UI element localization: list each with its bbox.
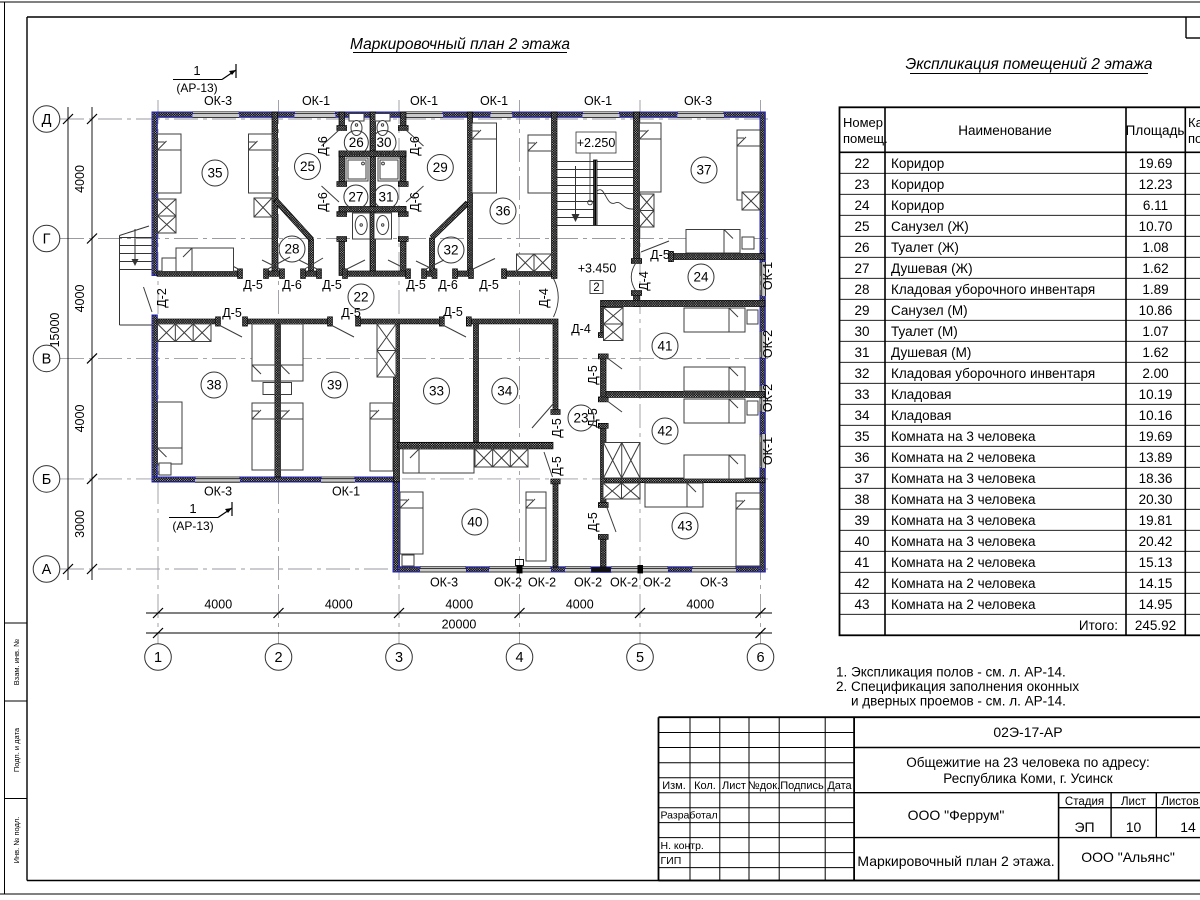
svg-text:4000: 4000: [325, 598, 353, 612]
svg-text:1: 1: [154, 650, 162, 666]
svg-text:Д-6: Д-6: [408, 192, 422, 212]
svg-text:Коридор: Коридор: [891, 177, 944, 192]
svg-text:10.19: 10.19: [1139, 387, 1173, 402]
svg-text:Д-6: Д-6: [282, 278, 302, 292]
svg-text:31: 31: [854, 345, 869, 360]
svg-text:ОК-1: ОК-1: [332, 485, 360, 499]
svg-text:20.42: 20.42: [1139, 534, 1173, 549]
svg-text:4000: 4000: [445, 598, 473, 612]
svg-text:1: 1: [189, 501, 196, 516]
svg-text:1.62: 1.62: [1142, 345, 1168, 360]
svg-text:22: 22: [353, 290, 368, 305]
svg-text:ОК-1: ОК-1: [302, 94, 330, 108]
svg-text:Д-4: Д-4: [537, 288, 551, 308]
svg-text:33: 33: [429, 384, 444, 399]
svg-text:41: 41: [657, 339, 672, 354]
svg-text:Номер: Номер: [843, 115, 883, 130]
svg-text:Комната на 3 человека: Комната на 3 человека: [891, 534, 1036, 549]
svg-text:39: 39: [327, 378, 342, 393]
svg-text:23: 23: [573, 411, 588, 426]
svg-text:6.11: 6.11: [1143, 198, 1168, 213]
svg-text:2. Спецификация заполнения око: 2. Спецификация заполнения оконных: [836, 679, 1079, 694]
svg-text:+2.250: +2.250: [577, 136, 616, 150]
svg-text:1.62: 1.62: [1142, 261, 1168, 276]
svg-text:20.30: 20.30: [1139, 492, 1173, 507]
svg-text:10.16: 10.16: [1139, 408, 1173, 423]
svg-text:В: В: [42, 351, 52, 367]
svg-text:по: по: [1188, 131, 1200, 146]
svg-text:2: 2: [593, 282, 599, 294]
svg-text:Комната на 2 человека: Комната на 2 человека: [891, 450, 1036, 465]
svg-text:4000: 4000: [73, 405, 87, 433]
svg-text:34: 34: [854, 408, 870, 423]
svg-text:Д-6: Д-6: [408, 136, 422, 156]
svg-text:38: 38: [206, 378, 221, 393]
svg-text:19.81: 19.81: [1139, 513, 1173, 528]
svg-text:ОК-2: ОК-2: [610, 576, 638, 590]
svg-text:Санузел (М): Санузел (М): [891, 303, 968, 318]
svg-text:Ка: Ка: [1188, 115, 1200, 130]
svg-text:Д-6: Д-6: [316, 192, 330, 212]
svg-text:Д-5: Д-5: [341, 306, 361, 320]
svg-text:Маркировочный план 2 этажа: Маркировочный план 2 этажа: [350, 36, 570, 53]
svg-text:2.00: 2.00: [1142, 366, 1168, 381]
svg-text:Д-4: Д-4: [637, 271, 651, 291]
svg-text:ОК-3: ОК-3: [684, 94, 712, 108]
svg-text:№док.: №док.: [748, 780, 780, 792]
svg-text:Б: Б: [42, 472, 52, 488]
svg-text:Комната на 2 человека: Комната на 2 человека: [891, 576, 1036, 591]
svg-text:Площадь: Площадь: [1126, 123, 1185, 138]
svg-text:ГИП: ГИП: [661, 855, 682, 867]
svg-text:28: 28: [284, 242, 299, 257]
svg-text:Комната на 3 человека: Комната на 3 человека: [891, 471, 1036, 486]
svg-text:ОК-3: ОК-3: [700, 576, 728, 590]
svg-text:24: 24: [854, 198, 870, 213]
svg-text:Изм.: Изм.: [662, 780, 686, 792]
svg-text:4000: 4000: [686, 598, 714, 612]
svg-text:6: 6: [756, 650, 764, 666]
svg-text:ООО "Альянс": ООО "Альянс": [1081, 849, 1175, 865]
svg-text:23: 23: [854, 177, 869, 192]
svg-text:Санузел (Ж): Санузел (Ж): [891, 219, 969, 234]
svg-text:30: 30: [854, 324, 869, 339]
svg-text:1.89: 1.89: [1142, 282, 1168, 297]
svg-text:5: 5: [636, 650, 644, 666]
svg-text:43: 43: [677, 519, 692, 534]
svg-text:22: 22: [854, 156, 869, 171]
svg-text:39: 39: [854, 513, 869, 528]
svg-text:ОК-1: ОК-1: [584, 94, 612, 108]
svg-text:ОК-2: ОК-2: [761, 330, 775, 358]
svg-text:15000: 15000: [48, 313, 62, 348]
svg-text:ОК-3: ОК-3: [204, 485, 232, 499]
svg-text:(АР-13): (АР-13): [172, 519, 213, 533]
svg-text:Д-5: Д-5: [550, 418, 564, 438]
svg-text:32: 32: [443, 243, 458, 258]
svg-text:Комната на 3 человека: Комната на 3 человека: [891, 492, 1036, 507]
svg-text:19.69: 19.69: [1139, 429, 1173, 444]
svg-text:и дверных проемов - см. л. АР-: и дверных проемов - см. л. АР-14.: [851, 694, 1066, 709]
svg-text:Лист: Лист: [722, 780, 746, 792]
svg-text:Д: Д: [42, 112, 52, 128]
svg-text:Разработал: Разработал: [661, 810, 718, 822]
svg-text:Коридор: Коридор: [891, 198, 944, 213]
svg-text:Общежитие на 23 человека по ад: Общежитие на 23 человека по адресу:: [906, 755, 1149, 770]
svg-text:10: 10: [1126, 819, 1142, 835]
svg-text:1: 1: [193, 63, 200, 78]
svg-text:Республика Коми, г. Усинск: Республика Коми, г. Усинск: [943, 771, 1113, 786]
svg-text:2: 2: [274, 650, 282, 666]
svg-text:Д-5: Д-5: [586, 365, 600, 385]
svg-text:35: 35: [207, 166, 222, 181]
svg-text:Подпись: Подпись: [780, 780, 824, 792]
svg-text:Наименование: Наименование: [958, 123, 1052, 138]
svg-text:Туалет (Ж): Туалет (Ж): [891, 240, 959, 255]
svg-text:29: 29: [854, 303, 869, 318]
svg-text:27: 27: [348, 190, 363, 205]
svg-text:Д-5: Д-5: [479, 278, 499, 292]
svg-text:Взам. инв. №: Взам. инв. №: [12, 639, 21, 685]
svg-text:35: 35: [854, 429, 869, 444]
svg-text:Д-5: Д-5: [243, 278, 263, 292]
svg-text:ОК-1: ОК-1: [761, 262, 775, 290]
svg-text:Комната на 2 человека: Комната на 2 человека: [891, 597, 1036, 612]
svg-text:Кладовая уборочного инвентаря: Кладовая уборочного инвентаря: [891, 282, 1095, 297]
svg-text:ОК-1: ОК-1: [761, 437, 775, 465]
svg-text:02Э-17-АР: 02Э-17-АР: [993, 724, 1062, 740]
svg-text:32: 32: [854, 366, 869, 381]
svg-text:Д-6: Д-6: [316, 136, 330, 156]
svg-text:ОК-1: ОК-1: [410, 94, 438, 108]
svg-text:14.95: 14.95: [1139, 597, 1173, 612]
svg-text:31: 31: [378, 190, 393, 205]
svg-text:14.15: 14.15: [1139, 576, 1173, 591]
svg-text:3: 3: [395, 650, 403, 666]
svg-text:37: 37: [854, 471, 869, 486]
svg-text:Кол.: Кол.: [694, 780, 716, 792]
svg-text:19.69: 19.69: [1139, 156, 1173, 171]
svg-text:ОК-1: ОК-1: [480, 94, 508, 108]
svg-text:+3.450: +3.450: [578, 262, 617, 276]
svg-text:Д-5: Д-5: [650, 248, 670, 262]
svg-text:29: 29: [433, 160, 448, 175]
svg-text:Д-5: Д-5: [406, 278, 426, 292]
svg-text:41: 41: [854, 555, 869, 570]
svg-text:Комната на 3 человека: Комната на 3 человека: [891, 513, 1036, 528]
svg-text:Листов: Листов: [1161, 796, 1198, 808]
svg-text:Кладовая уборочного инвентаря: Кладовая уборочного инвентаря: [891, 366, 1095, 381]
svg-text:18.36: 18.36: [1139, 471, 1173, 486]
svg-text:Д-5: Д-5: [550, 456, 564, 476]
svg-text:40: 40: [854, 534, 869, 549]
svg-text:26: 26: [854, 240, 869, 255]
svg-text:20000: 20000: [442, 618, 477, 632]
svg-text:Туалет (М): Туалет (М): [891, 324, 958, 339]
svg-text:43: 43: [854, 597, 869, 612]
svg-text:ОК-2: ОК-2: [643, 576, 671, 590]
svg-text:30: 30: [376, 135, 391, 150]
svg-text:38: 38: [854, 492, 869, 507]
svg-text:Дата: Дата: [827, 780, 852, 792]
svg-text:26: 26: [349, 135, 364, 150]
svg-text:помещ.: помещ.: [843, 131, 888, 146]
svg-text:Подп. и дата: Подп. и дата: [12, 727, 21, 772]
svg-text:1.07: 1.07: [1142, 324, 1168, 339]
svg-text:36: 36: [495, 204, 510, 219]
svg-text:Д-2: Д-2: [155, 288, 169, 308]
svg-text:Экспликация помещений 2 этажа: Экспликация помещений 2 этажа: [905, 56, 1152, 73]
svg-text:4: 4: [515, 650, 523, 666]
svg-text:33: 33: [854, 387, 869, 402]
svg-text:25: 25: [854, 219, 869, 234]
svg-text:24: 24: [693, 270, 709, 285]
svg-text:ОК-3: ОК-3: [204, 94, 232, 108]
svg-text:36: 36: [854, 450, 869, 465]
svg-text:Д-6: Д-6: [438, 278, 458, 292]
svg-text:Инв. № подл.: Инв. № подл.: [12, 817, 21, 864]
svg-text:27: 27: [854, 261, 869, 276]
svg-text:Д-5: Д-5: [222, 306, 242, 320]
svg-text:28: 28: [854, 282, 869, 297]
svg-text:4000: 4000: [566, 598, 594, 612]
svg-text:37: 37: [696, 163, 711, 178]
svg-text:Комната на 3 человека: Комната на 3 человека: [891, 429, 1036, 444]
svg-text:Маркировочный план 2 этажа.: Маркировочный план 2 этажа.: [857, 853, 1054, 869]
svg-text:Г: Г: [43, 232, 51, 248]
svg-text:Д-5: Д-5: [586, 512, 600, 532]
svg-text:Душевая (Ж): Душевая (Ж): [891, 261, 973, 276]
svg-text:25: 25: [300, 159, 315, 174]
svg-text:12.23: 12.23: [1139, 177, 1173, 192]
svg-text:Итого:: Итого:: [1079, 618, 1118, 633]
svg-text:1. Экспликация полов - см. л.: 1. Экспликация полов - см. л. АР-14.: [836, 665, 1066, 680]
svg-text:ОК-3: ОК-3: [430, 576, 458, 590]
svg-text:42: 42: [657, 424, 672, 439]
svg-text:10.86: 10.86: [1139, 303, 1173, 318]
svg-text:245.92: 245.92: [1135, 618, 1176, 633]
svg-text:Д-5: Д-5: [322, 278, 342, 292]
svg-text:3000: 3000: [73, 510, 87, 538]
svg-text:Комната на 2 человека: Комната на 2 человека: [891, 555, 1036, 570]
svg-text:Д-5: Д-5: [443, 305, 463, 319]
svg-text:Коридор: Коридор: [891, 156, 944, 171]
svg-text:ОК-2: ОК-2: [494, 576, 522, 590]
svg-text:40: 40: [467, 515, 482, 530]
svg-text:ОК-2: ОК-2: [761, 384, 775, 412]
svg-text:(АР-13): (АР-13): [176, 81, 217, 95]
svg-text:13.89: 13.89: [1139, 450, 1173, 465]
svg-text:Душевая (М): Душевая (М): [891, 345, 971, 360]
svg-text:4000: 4000: [73, 165, 87, 193]
svg-text:10.70: 10.70: [1139, 219, 1173, 234]
svg-text:14: 14: [1180, 819, 1196, 835]
svg-text:ОК-2: ОК-2: [528, 576, 556, 590]
svg-text:Кладовая: Кладовая: [891, 408, 951, 423]
svg-text:ОК-2: ОК-2: [574, 576, 602, 590]
svg-text:15.13: 15.13: [1139, 555, 1173, 570]
svg-text:1.08: 1.08: [1142, 240, 1168, 255]
svg-text:ЭП: ЭП: [1074, 819, 1094, 835]
svg-text:Стадия: Стадия: [1065, 796, 1104, 808]
svg-text:Лист: Лист: [1121, 796, 1147, 808]
svg-text:42: 42: [854, 576, 869, 591]
svg-text:4000: 4000: [73, 285, 87, 313]
svg-text:34: 34: [497, 384, 513, 399]
svg-text:ООО "Феррум": ООО "Феррум": [908, 807, 1005, 823]
svg-text:Н. контр.: Н. контр.: [661, 840, 704, 852]
svg-text:Кладовая: Кладовая: [891, 387, 951, 402]
svg-text:Д-4: Д-4: [571, 322, 591, 336]
svg-text:А: А: [42, 562, 52, 578]
svg-text:4000: 4000: [204, 598, 232, 612]
